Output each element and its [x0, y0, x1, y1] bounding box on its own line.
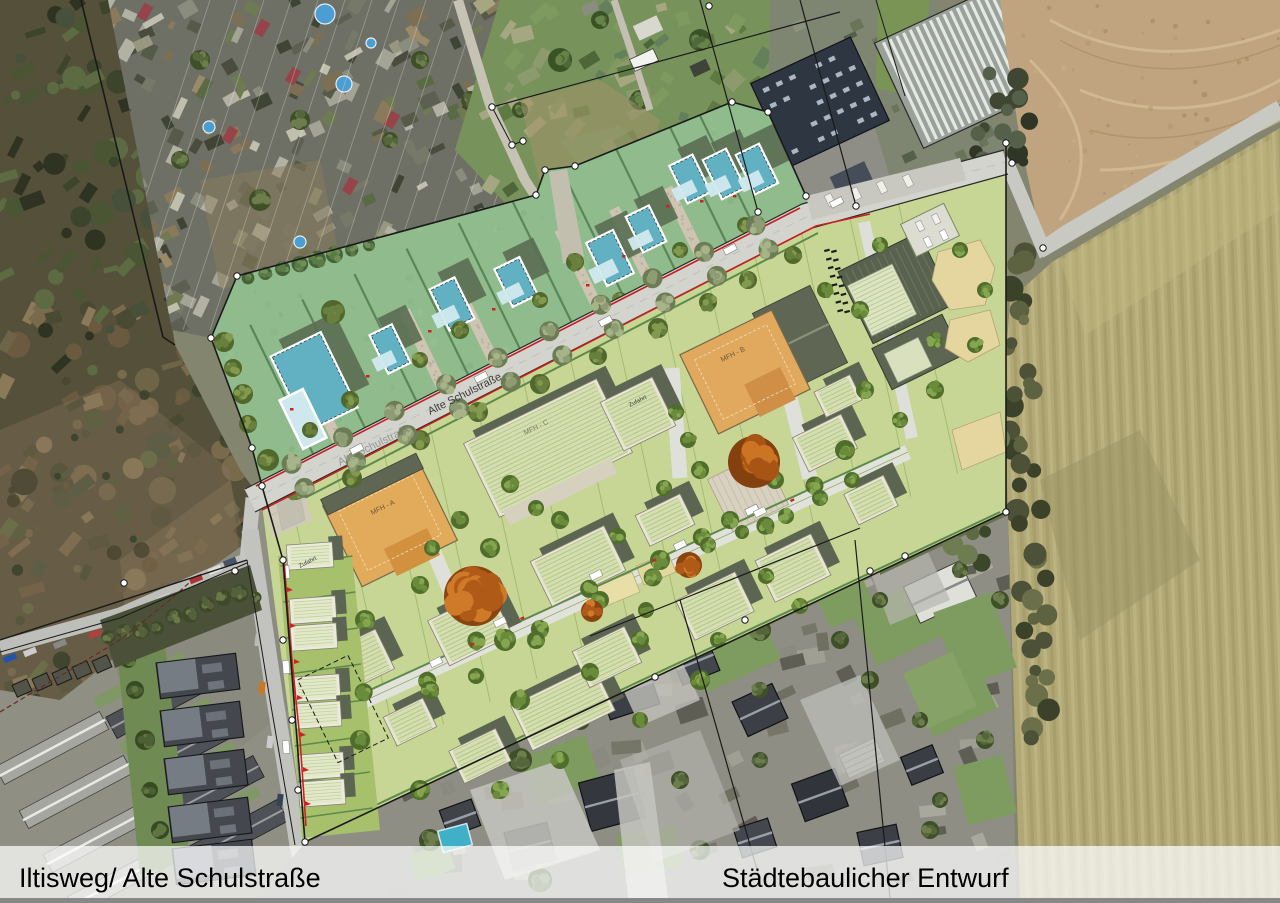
svg-text:Städtebaulicher Entwurf: Städtebaulicher Entwurf [722, 863, 1009, 893]
svg-text:Iltisweg/ Alte Schulstraße: Iltisweg/ Alte Schulstraße [19, 863, 321, 893]
